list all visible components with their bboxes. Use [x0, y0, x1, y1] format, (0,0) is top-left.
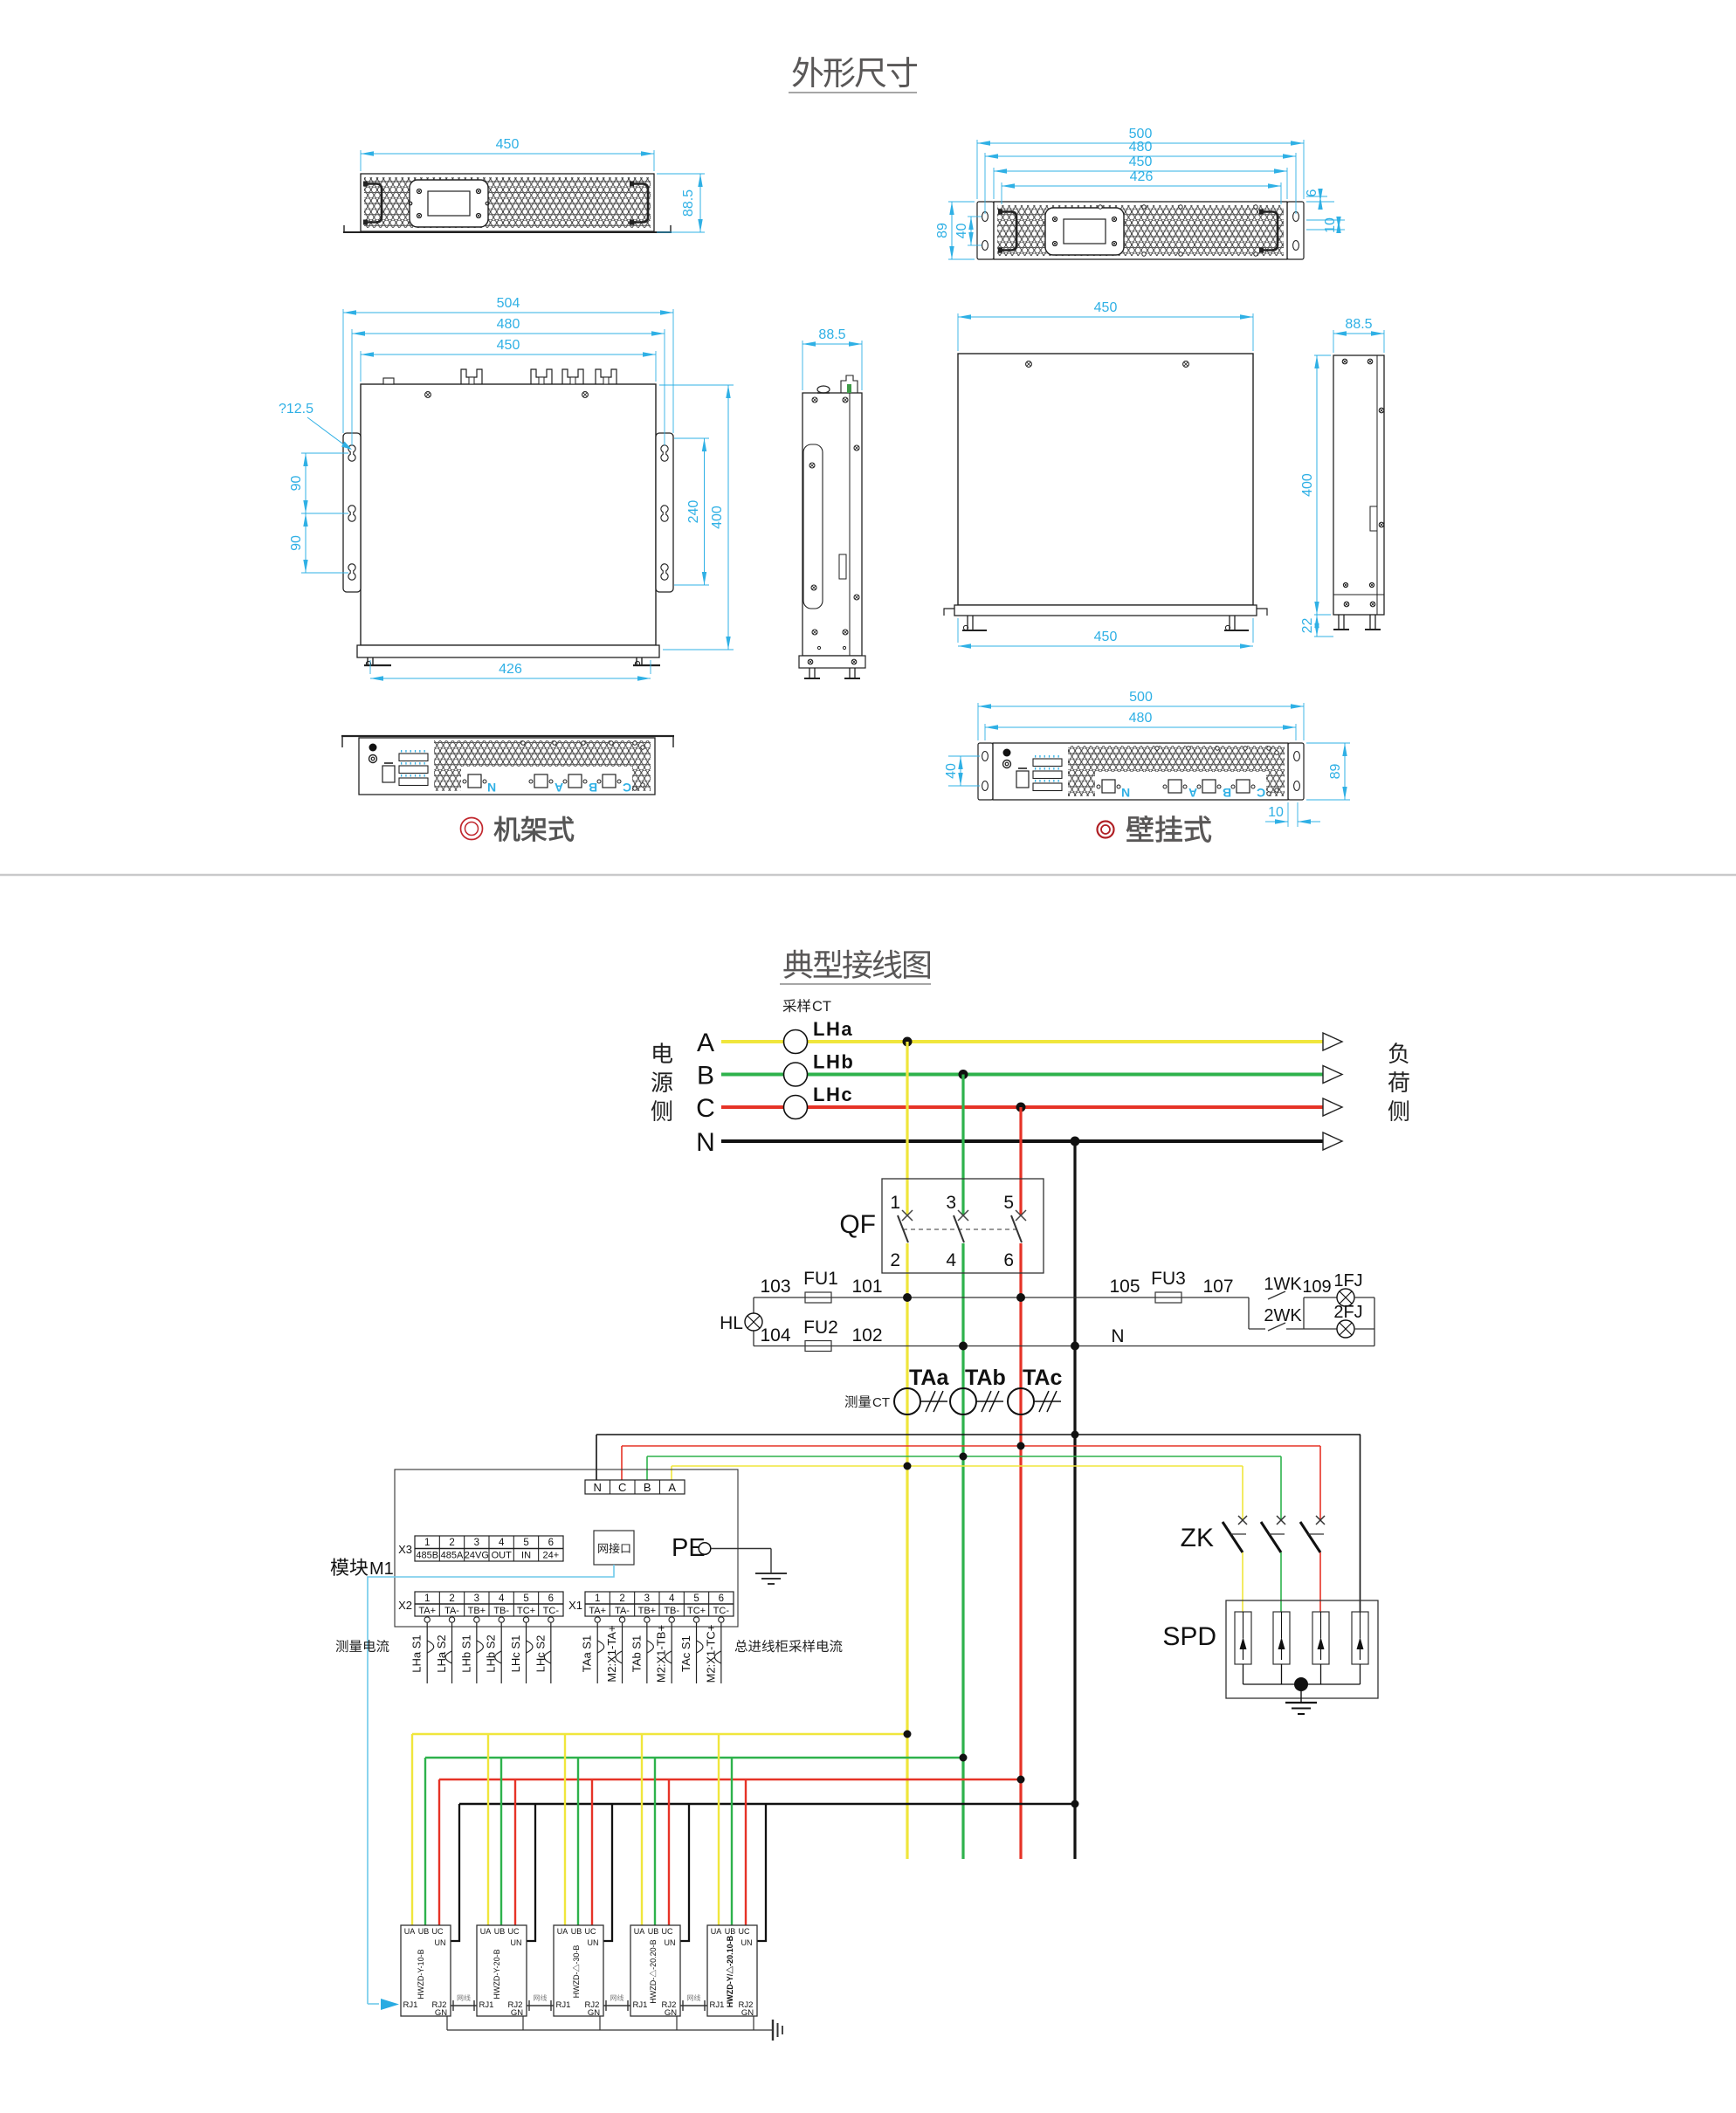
- svg-text:TA-: TA-: [444, 1606, 459, 1616]
- svg-text:UA: UA: [557, 1927, 568, 1936]
- svg-text:IN: IN: [521, 1551, 531, 1561]
- svg-text:1: 1: [595, 1593, 600, 1604]
- svg-text:A: A: [555, 781, 563, 795]
- svg-text:UA: UA: [480, 1927, 492, 1936]
- svg-text:3: 3: [946, 1193, 956, 1213]
- svg-text:10: 10: [1323, 217, 1338, 233]
- svg-text:X3: X3: [398, 1543, 412, 1556]
- svg-text:GN: GN: [665, 2008, 677, 2018]
- svg-text:105: 105: [1109, 1277, 1140, 1297]
- svg-text:6: 6: [719, 1593, 724, 1604]
- svg-text:B: B: [697, 1062, 714, 1091]
- svg-text:A: A: [668, 1481, 676, 1494]
- svg-text:90: 90: [289, 476, 304, 492]
- svg-text:N: N: [696, 1128, 715, 1157]
- svg-text:107: 107: [1202, 1277, 1233, 1297]
- svg-text:485A: 485A: [441, 1551, 464, 1561]
- svg-text:GN: GN: [435, 2008, 447, 2018]
- svg-text:N: N: [594, 1481, 602, 1494]
- svg-text:5: 5: [523, 1593, 528, 1604]
- svg-text:24VG: 24VG: [465, 1551, 489, 1561]
- svg-text:M2:X1-TC+: M2:X1-TC+: [704, 1625, 717, 1683]
- svg-text:UN: UN: [665, 1938, 676, 1947]
- svg-text:480: 480: [497, 317, 520, 332]
- svg-text:HWZD-Y/: HWZD-Y/: [726, 1973, 734, 2007]
- svg-text:TAa S1: TAa S1: [581, 1635, 594, 1672]
- svg-text:UA: UA: [634, 1927, 645, 1936]
- svg-text:CT: CT: [812, 999, 831, 1015]
- svg-text:LHa S2: LHa S2: [435, 1635, 448, 1672]
- svg-text:HL: HL: [720, 1313, 743, 1333]
- svg-text:TC-: TC-: [713, 1606, 730, 1616]
- svg-text:LHa S1: LHa S1: [410, 1635, 424, 1672]
- svg-text:4: 4: [499, 1538, 505, 1548]
- svg-text:C: C: [1257, 786, 1265, 800]
- svg-text:89: 89: [935, 223, 950, 238]
- svg-text:426: 426: [499, 662, 522, 677]
- svg-text:1FJ: 1FJ: [1333, 1271, 1362, 1291]
- svg-text:2: 2: [890, 1250, 900, 1270]
- svg-text:UN: UN: [588, 1938, 599, 1947]
- svg-text:2: 2: [619, 1593, 624, 1604]
- svg-text:N: N: [1111, 1326, 1124, 1346]
- svg-text:2: 2: [449, 1593, 454, 1604]
- svg-text:LHb: LHb: [813, 1051, 854, 1073]
- svg-text:TB-: TB-: [493, 1606, 509, 1616]
- svg-text:1: 1: [424, 1538, 430, 1548]
- svg-text:M1: M1: [369, 1559, 394, 1579]
- svg-text:UB: UB: [418, 1927, 430, 1936]
- svg-text:1: 1: [424, 1593, 430, 1604]
- svg-text:RJ1: RJ1: [479, 2000, 494, 2010]
- svg-text:QF: QF: [839, 1210, 876, 1239]
- svg-text:UC: UC: [508, 1927, 520, 1936]
- svg-text:450: 450: [1094, 300, 1118, 315]
- svg-text:?12.5: ?12.5: [279, 402, 313, 416]
- svg-text:88.5: 88.5: [681, 189, 696, 217]
- svg-text:500: 500: [1129, 690, 1153, 705]
- svg-text:-20.20-B: -20.20-B: [649, 1939, 658, 1970]
- svg-text:40: 40: [944, 763, 959, 779]
- svg-text:480: 480: [1129, 711, 1153, 726]
- svg-text:6: 6: [548, 1593, 554, 1604]
- svg-text:A: A: [697, 1029, 714, 1057]
- svg-text:LHc: LHc: [813, 1084, 853, 1105]
- svg-text:TAc: TAc: [1023, 1366, 1062, 1390]
- svg-text:FU2: FU2: [803, 1318, 838, 1338]
- svg-text:4: 4: [669, 1593, 675, 1604]
- svg-text:X1: X1: [568, 1599, 582, 1612]
- svg-text:B: B: [589, 781, 597, 795]
- svg-text:TA-: TA-: [615, 1606, 630, 1616]
- svg-text:89: 89: [1328, 764, 1343, 780]
- svg-text:RJ1: RJ1: [403, 2000, 418, 2010]
- svg-text:LHa: LHa: [813, 1018, 853, 1040]
- svg-text:UN: UN: [741, 1938, 753, 1947]
- svg-text:90: 90: [289, 535, 304, 551]
- svg-text:LHc S2: LHc S2: [534, 1635, 547, 1673]
- svg-text:426: 426: [1130, 169, 1154, 184]
- svg-text:485B: 485B: [416, 1551, 438, 1561]
- svg-text:LHc S1: LHc S1: [509, 1635, 522, 1673]
- svg-text:103: 103: [760, 1277, 790, 1297]
- svg-text:RJ1: RJ1: [556, 2000, 571, 2010]
- svg-text:400: 400: [1300, 473, 1315, 497]
- svg-text:OUT: OUT: [492, 1551, 513, 1561]
- svg-text:1: 1: [890, 1193, 900, 1213]
- svg-text:ZK: ZK: [1181, 1524, 1214, 1552]
- svg-text:102: 102: [851, 1325, 882, 1346]
- svg-text:RJ1: RJ1: [710, 2000, 725, 2010]
- svg-text:6: 6: [1305, 189, 1319, 196]
- svg-text:24+: 24+: [543, 1551, 560, 1561]
- svg-text:3: 3: [474, 1593, 479, 1604]
- svg-text:GN: GN: [588, 2008, 600, 2018]
- svg-text:450: 450: [497, 338, 520, 353]
- svg-text:UN: UN: [435, 1938, 446, 1947]
- svg-text:SPD: SPD: [1162, 1622, 1216, 1651]
- svg-text:UN: UN: [511, 1938, 522, 1947]
- svg-text:B: B: [644, 1481, 651, 1494]
- svg-text:450: 450: [1094, 630, 1118, 644]
- svg-text:TB+: TB+: [638, 1606, 656, 1616]
- svg-text:UA: UA: [711, 1927, 722, 1936]
- svg-text:5: 5: [1003, 1193, 1014, 1213]
- svg-text:LHb S2: LHb S2: [485, 1635, 498, 1672]
- svg-text:TB-: TB-: [664, 1606, 679, 1616]
- svg-text:B: B: [1223, 786, 1231, 800]
- svg-text:2WK: 2WK: [1264, 1306, 1302, 1325]
- svg-text:4: 4: [946, 1250, 956, 1270]
- svg-text:2: 2: [449, 1538, 454, 1548]
- svg-text:HWZD-Y-10-B: HWZD-Y-10-B: [417, 1949, 425, 1999]
- svg-text:CT: CT: [872, 1395, 890, 1410]
- svg-text:N: N: [1121, 786, 1130, 800]
- svg-text:X2: X2: [398, 1599, 412, 1612]
- svg-text:LHb S1: LHb S1: [459, 1635, 472, 1672]
- svg-text:400: 400: [710, 506, 725, 529]
- svg-text:TAc S1: TAc S1: [679, 1635, 692, 1672]
- svg-text:TAa: TAa: [909, 1366, 949, 1390]
- svg-text:-30-B: -30-B: [572, 1945, 581, 1965]
- svg-text:-20.10-B: -20.10-B: [726, 1935, 734, 1966]
- svg-text:TC+: TC+: [687, 1606, 706, 1616]
- svg-text:C: C: [696, 1094, 715, 1123]
- svg-text:HWZD-Y-20-B: HWZD-Y-20-B: [493, 1949, 501, 1999]
- svg-text:3: 3: [474, 1538, 479, 1548]
- svg-text:FU3: FU3: [1151, 1269, 1186, 1289]
- svg-text:450: 450: [496, 137, 520, 152]
- svg-text:10: 10: [1268, 805, 1284, 820]
- svg-text:101: 101: [851, 1277, 882, 1297]
- svg-text:M2:X1-TA+: M2:X1-TA+: [605, 1625, 618, 1682]
- svg-text:TA+: TA+: [589, 1606, 606, 1616]
- svg-text:6: 6: [1003, 1250, 1014, 1270]
- svg-text:5: 5: [523, 1538, 528, 1548]
- svg-text:GN: GN: [511, 2008, 523, 2018]
- svg-text:4: 4: [499, 1593, 505, 1604]
- svg-text:UB: UB: [494, 1927, 506, 1936]
- svg-text:TB+: TB+: [468, 1606, 486, 1616]
- svg-text:HWZD-: HWZD-: [572, 1972, 581, 1998]
- svg-text:TAb: TAb: [965, 1366, 1006, 1390]
- svg-text:UB: UB: [648, 1927, 659, 1936]
- svg-text:N: N: [487, 781, 496, 795]
- svg-text:450: 450: [1129, 155, 1153, 169]
- svg-text:109: 109: [1302, 1277, 1331, 1297]
- svg-text:TA+: TA+: [418, 1606, 436, 1616]
- svg-text:5: 5: [693, 1593, 699, 1604]
- svg-text:TC-: TC-: [543, 1606, 560, 1616]
- svg-text:22: 22: [1300, 618, 1315, 634]
- svg-text:UC: UC: [432, 1927, 444, 1936]
- svg-text:2FJ: 2FJ: [1333, 1303, 1362, 1322]
- svg-text:TC+: TC+: [517, 1606, 535, 1616]
- svg-text:C: C: [623, 781, 631, 795]
- svg-text:GN: GN: [741, 2008, 754, 2018]
- svg-text:FU1: FU1: [803, 1269, 838, 1289]
- svg-text:480: 480: [1129, 140, 1153, 155]
- svg-text:HWZD-: HWZD-: [649, 1978, 658, 2004]
- svg-text:C: C: [618, 1481, 626, 1494]
- svg-text:M2:X1-TB+: M2:X1-TB+: [655, 1625, 668, 1683]
- svg-text:TAb S1: TAb S1: [630, 1635, 643, 1672]
- svg-text:UA: UA: [404, 1927, 416, 1936]
- svg-text:1WK: 1WK: [1264, 1275, 1302, 1294]
- svg-text:UC: UC: [662, 1927, 673, 1936]
- svg-text:UB: UB: [725, 1927, 736, 1936]
- svg-text:UB: UB: [571, 1927, 582, 1936]
- svg-text:UC: UC: [739, 1927, 750, 1936]
- svg-text:88.5: 88.5: [1345, 317, 1372, 332]
- svg-text:104: 104: [760, 1325, 790, 1346]
- svg-text:240: 240: [686, 500, 701, 524]
- svg-text:88.5: 88.5: [818, 327, 845, 342]
- svg-text:RJ1: RJ1: [633, 2000, 648, 2010]
- svg-text:40: 40: [954, 224, 969, 239]
- svg-text:A: A: [1188, 786, 1197, 800]
- svg-text:504: 504: [497, 296, 520, 311]
- svg-text:UC: UC: [585, 1927, 596, 1936]
- svg-text:6: 6: [548, 1538, 554, 1548]
- svg-text:3: 3: [644, 1593, 650, 1604]
